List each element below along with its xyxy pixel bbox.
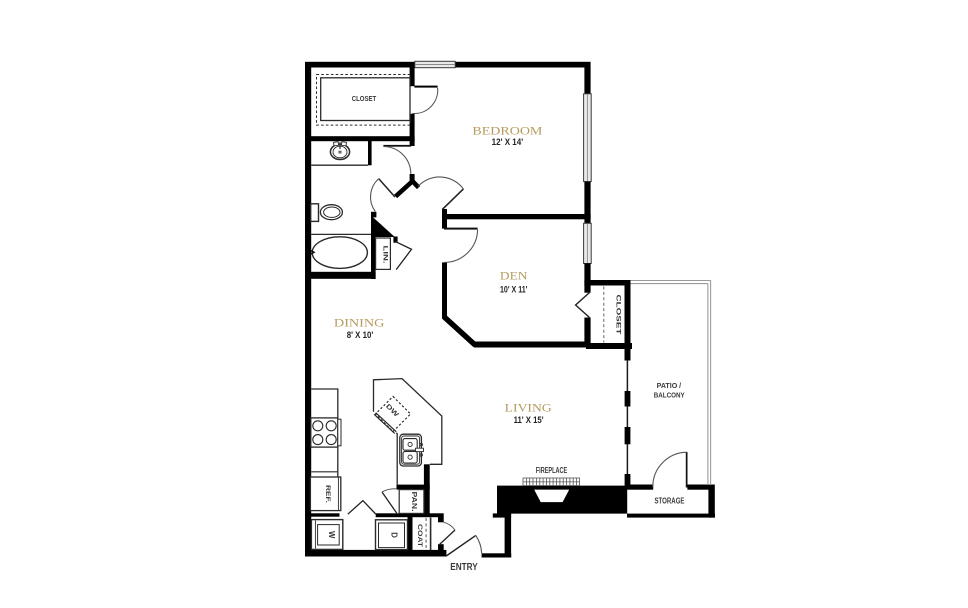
svg-text:STORAGE: STORAGE bbox=[655, 496, 685, 505]
svg-text:CLOSET: CLOSET bbox=[615, 295, 622, 336]
svg-text:COAT: COAT bbox=[416, 524, 423, 548]
svg-text:D: D bbox=[390, 532, 399, 538]
svg-text:11' X 15': 11' X 15' bbox=[514, 415, 544, 425]
svg-text:LIN.: LIN. bbox=[381, 246, 388, 264]
svg-text:DEN: DEN bbox=[500, 271, 528, 283]
svg-text:12' X 14': 12' X 14' bbox=[492, 137, 524, 147]
svg-text:FIREPLACE: FIREPLACE bbox=[536, 466, 568, 475]
svg-text:REF.: REF. bbox=[324, 485, 331, 503]
svg-text:PATIO /: PATIO / bbox=[657, 381, 682, 390]
svg-text:BALCONY: BALCONY bbox=[654, 390, 685, 399]
svg-text:W: W bbox=[327, 531, 336, 539]
svg-text:BEDROOM: BEDROOM bbox=[472, 126, 542, 138]
svg-text:DINING: DINING bbox=[334, 318, 385, 330]
svg-text:ENTRY: ENTRY bbox=[450, 562, 478, 573]
svg-text:LIVING: LIVING bbox=[505, 403, 552, 415]
svg-text:PAN.: PAN. bbox=[410, 492, 417, 512]
svg-text:CLOSET: CLOSET bbox=[352, 96, 377, 103]
svg-text:10' X 11': 10' X 11' bbox=[500, 285, 528, 295]
svg-text:8' X 10': 8' X 10' bbox=[347, 330, 374, 340]
